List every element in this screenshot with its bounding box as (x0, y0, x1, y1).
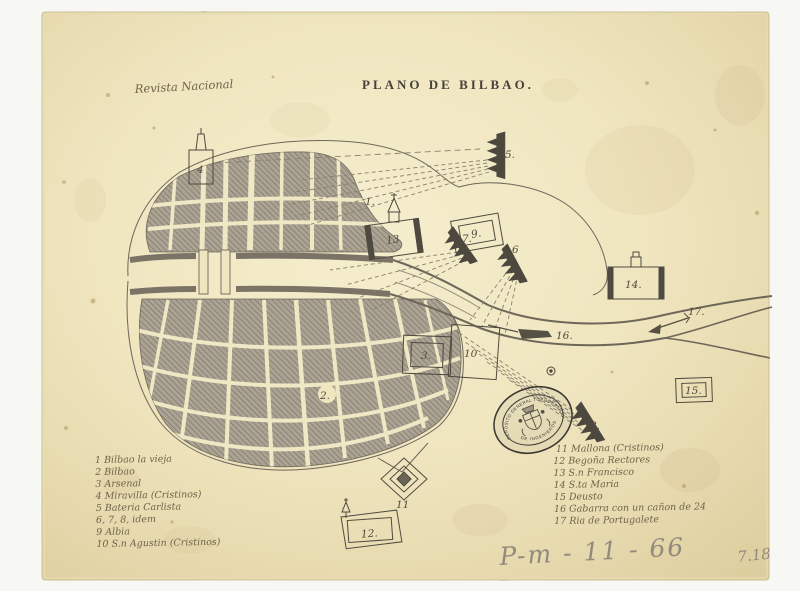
legend-item: 9 Albia (96, 526, 130, 538)
map-label-4: 4 (196, 164, 204, 176)
bridge (199, 250, 208, 294)
map-label-3: 3. (421, 350, 431, 362)
legend-item: 1 Bilbao la vieja (95, 454, 172, 466)
legend-item: 5 Bateria Carlista (96, 501, 182, 513)
legend-item: 17 Ria de Portugalete (554, 514, 659, 527)
map-label-10: 10 (464, 348, 478, 360)
map-label-11: 11 (396, 499, 409, 511)
legend-item: 3 Arsenal (95, 478, 141, 490)
legend-item: 10 S.n Agustin (Cristinos) (96, 537, 221, 550)
map-label-16: 16. (556, 330, 573, 342)
legend-item: 2 Bilbao (94, 466, 135, 478)
legend-item: 11 Mallona (Cristinos) (556, 442, 664, 455)
map-label-17: 17. (688, 306, 705, 318)
legend-item: 13 S.n Francisco (553, 467, 634, 479)
pencil-number: 7.18 (737, 545, 772, 566)
map-label-13: 13 (385, 233, 400, 247)
bridge (221, 250, 230, 294)
map-label-5: 5. (505, 149, 515, 161)
map-label-8: 8. (590, 420, 600, 432)
map-label-2: 2. (319, 390, 330, 402)
legend-item: 15 Deusto (554, 491, 603, 503)
legend-item: 12 Begoña Rectores (553, 454, 650, 467)
map-label-12: 12. (361, 527, 378, 540)
map-label-6: 6 (512, 244, 519, 256)
legend-item: 14 S.ta Maria (553, 479, 619, 491)
map-label-15: 15. (685, 385, 702, 397)
page-title: PLANO DE BILBAO. (362, 77, 534, 92)
map-label-9: 9. (470, 227, 482, 241)
scanned-map-plano-de-bilbao: DEPOSITO GENERAL TOPOGRAFICO DE INGENIER… (0, 0, 800, 591)
legend-item: 4 Miravilla (Cristinos) (94, 489, 201, 502)
map-label-1: 1. (365, 196, 375, 208)
map-label-14: 14. (625, 279, 642, 291)
legend-item: 6, 7, 8, idem (96, 514, 156, 526)
